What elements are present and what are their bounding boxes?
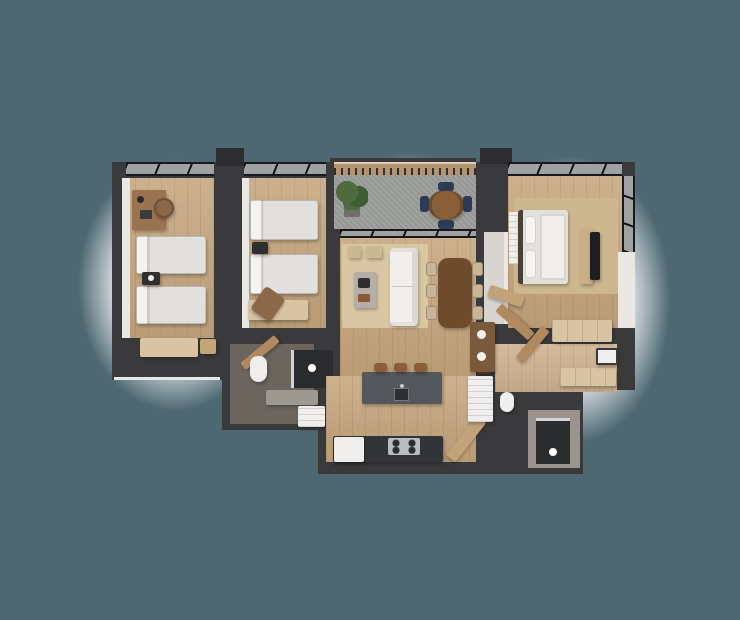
island-faucet: [400, 384, 404, 388]
dining-chair-l3: [426, 306, 437, 320]
dining-chair-l2: [426, 284, 437, 298]
desk-laptop: [140, 210, 152, 219]
sofa: [390, 248, 418, 326]
desk-lamp: [137, 196, 144, 203]
master-window-right: [622, 176, 635, 252]
tv: [590, 232, 600, 280]
vanity-sink-2: [477, 352, 486, 361]
master-pillow-1: [525, 216, 536, 244]
balcony-chair-left: [420, 196, 429, 212]
master-duvet: [540, 214, 566, 280]
wall-column-left: [216, 148, 244, 166]
twin-bed-1a: [136, 236, 206, 274]
bedroom1-wall-face: [122, 178, 130, 338]
bedroom1-bench: [140, 338, 198, 357]
desk-chair: [154, 198, 174, 218]
ottoman-2: [366, 246, 382, 258]
bar-stool-1: [374, 363, 387, 372]
twin-bed-2a: [250, 200, 318, 240]
coffee-table-book: [358, 294, 370, 302]
nightstand-1-lamp: [148, 275, 154, 281]
dining-table: [438, 258, 472, 328]
master-shower-tile: [536, 418, 570, 464]
toilet-2: [250, 356, 267, 382]
shower-2-drain: [308, 364, 316, 372]
dining-chair-r3: [472, 306, 483, 320]
floor-plan-render: [0, 0, 740, 620]
closet-wardrobe-1: [552, 320, 612, 342]
balcony-chair-right: [463, 196, 472, 212]
master-window-top: [508, 162, 622, 176]
balcony-railing: [334, 162, 476, 175]
white-cabinet: [468, 376, 493, 422]
toilet-master: [500, 392, 514, 412]
nightstand-2: [252, 242, 268, 254]
master-shower-drain: [549, 448, 557, 456]
refrigerator: [334, 437, 364, 462]
balcony-sliding-door: [340, 229, 476, 238]
washer: [298, 406, 325, 427]
coffee-table-tray: [358, 278, 370, 288]
sofa-cushion-line: [392, 286, 414, 287]
master-pillow-2: [525, 250, 536, 278]
twin-bed-2b: [250, 254, 318, 294]
dining-chair-r1: [472, 262, 483, 276]
balcony-plant: [336, 180, 368, 210]
bottom-edge-trim: [114, 377, 220, 380]
ottoman-1: [348, 246, 361, 258]
closet-wardrobe-2: [560, 368, 616, 386]
cooktop: [388, 438, 420, 455]
bar-stool-3: [414, 363, 427, 372]
vanity-2: [266, 390, 318, 405]
bedroom1-side-table: [200, 339, 216, 354]
bar-stool-2: [394, 363, 407, 372]
vanity-sink-1: [477, 330, 486, 339]
bedroom2-window: [244, 162, 326, 176]
balcony-chair-top: [438, 182, 454, 191]
twin-bed-1b: [136, 286, 206, 324]
dining-chair-l1: [426, 262, 437, 276]
balcony-table: [428, 190, 464, 220]
dining-chair-r2: [472, 284, 483, 298]
balcony-chair-bottom: [438, 220, 454, 229]
island-sink: [394, 388, 409, 401]
bedroom1-window: [126, 162, 214, 176]
closet-storage-box: [596, 348, 618, 365]
